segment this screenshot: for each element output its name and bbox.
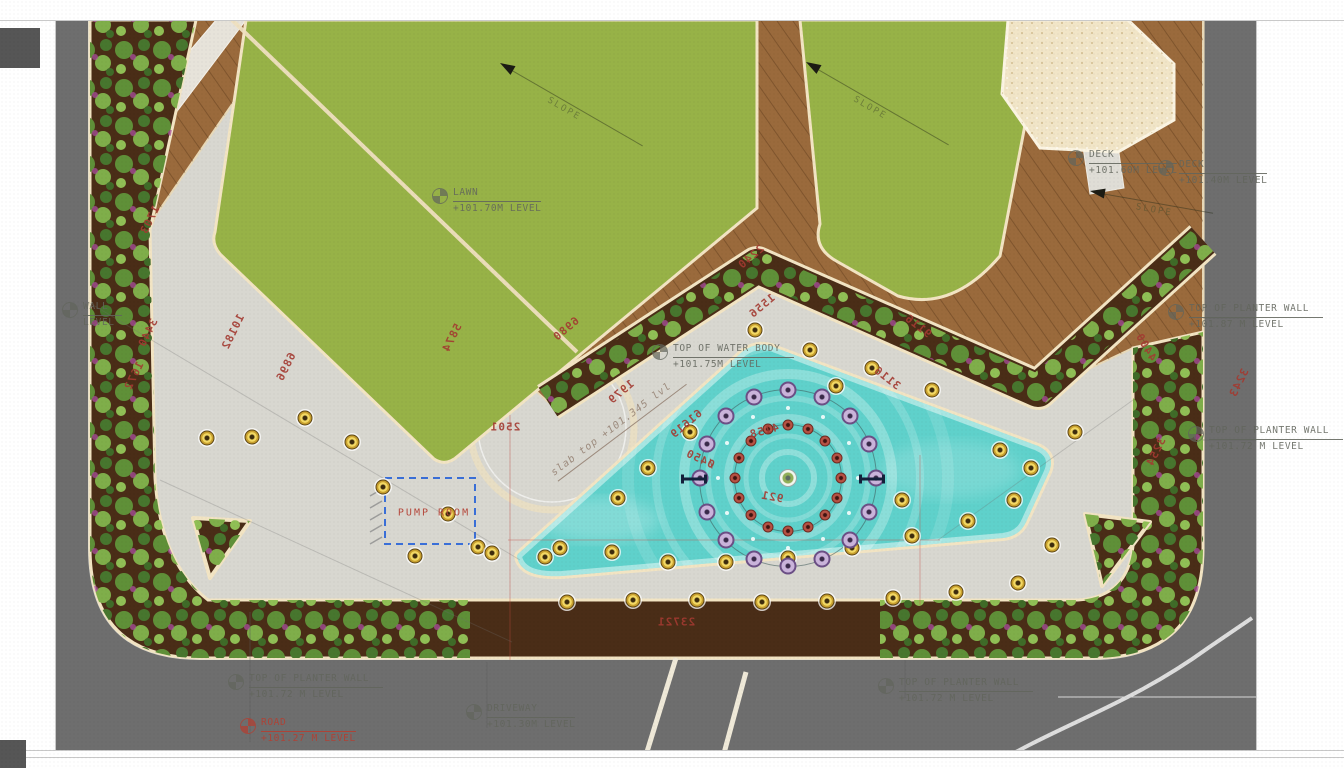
fountain-jet-outer [842,532,859,549]
label-text: TOP OF PLANTER WALL+101.72 M LEVEL [1209,424,1343,454]
label-text: TOP OF WATER BODY+101.75M LEVEL [673,342,794,372]
light-marker [905,529,920,544]
fountain-jet-inner [730,473,741,484]
fountain-jet-inner [803,424,814,435]
slope-arrow: SLOPE [500,58,665,68]
fountain-jet-mini [725,511,729,515]
margin-left [0,20,55,750]
light-marker [1024,461,1039,476]
fountain-jet-inner [820,510,831,521]
fountain-jet-outer [746,389,763,406]
light-marker [626,593,641,608]
section-marker [860,478,884,481]
label-water-body-level: TOP OF WATER BODY+101.75M LEVEL [652,342,794,372]
fountain-jet-mini [847,511,851,515]
light-marker [748,323,763,338]
level-crosshair-icon [878,678,894,694]
label-planter-wall-level-top-left-partial: WALLLEVEL [62,300,122,330]
light-marker [1068,425,1083,440]
fountain-jet-mini [786,406,790,410]
fountain-jet-outer [814,551,831,568]
light-marker [829,379,844,394]
label-text: WALLLEVEL [83,300,122,330]
light-marker [298,411,313,426]
light-marker [719,555,734,570]
light-marker [1007,493,1022,508]
light-marker [925,383,940,398]
site-plan-canvas: PUMP ROOM LAWN+101.70M LEVELTOP OF WATER… [0,0,1344,768]
fountain-jet-inner [746,510,757,521]
slope-arrow: SLOPE [806,57,971,67]
light-marker [1045,538,1060,553]
fountain-jet-outer [699,436,716,453]
fountain-jet-outer [861,504,878,521]
fountain-jet-outer [718,408,735,425]
pump-room-label: PUMP ROOM [398,508,470,519]
level-crosshair-icon [432,188,448,204]
label-text: DRIVEWAY+101.30M LEVEL [487,702,575,732]
fountain-jet-inner [763,522,774,533]
label-text: DECK+101.40M LEVEL [1179,158,1267,188]
fountain-jet-mini [821,537,825,541]
light-marker [886,591,901,606]
level-crosshair-icon [1168,304,1184,320]
fountain-jet-inner [783,420,794,431]
label-planter-wall-level-bottom-left: TOP OF PLANTER WALL+101.72 M LEVEL [228,672,383,702]
label-text: TOP OF PLANTER WALL+101.72 M LEVEL [899,676,1033,706]
fountain-jet-outer [746,551,763,568]
fountain-jet-mini [847,441,851,445]
light-marker [949,585,964,600]
dimension-text: 23721 [657,616,695,629]
label-planter-wall-level-right-upper: TOP OF PLANTER WALL+101.87 M LEVEL [1168,302,1323,332]
light-marker [661,555,676,570]
fountain-jet-inner [832,453,843,464]
dimension-text: 2501 [490,421,521,434]
light-marker [690,593,705,608]
margin-bottom [0,750,1344,768]
light-marker [345,435,360,450]
light-marker [553,541,568,556]
light-marker [485,546,500,561]
light-marker [755,595,770,610]
fountain-jet-outer [780,382,797,399]
margin-top [0,0,1344,20]
fountain-jet-mini [786,546,790,550]
light-marker [538,550,553,565]
light-marker [471,540,486,555]
light-marker [200,431,215,446]
corner-block-top-left [0,28,40,68]
label-text: ROAD+101.27 M LEVEL [261,716,356,746]
light-marker [605,545,620,560]
fountain-jet-inner [803,522,814,533]
light-marker [993,443,1008,458]
corner-block-bottom-left [0,740,26,768]
label-lawn-level: LAWN+101.70M LEVEL [432,186,541,216]
label-driveway-level: DRIVEWAY+101.30M LEVEL [466,702,575,732]
fountain-jet-outer [842,408,859,425]
fountain-jet-outer [814,389,831,406]
level-crosshair-icon [1188,426,1204,442]
margin-right [1256,20,1344,750]
fountain-jet-inner [734,493,745,504]
fountain-jet-outer [780,558,797,575]
label-road-level: ROAD+101.27 M LEVEL [240,716,356,746]
light-marker [803,343,818,358]
fountain-jet-mini [821,415,825,419]
light-marker [641,461,656,476]
label-text: TOP OF PLANTER WALL+101.72 M LEVEL [249,672,383,702]
label-planter-wall-level-bottom-right: TOP OF PLANTER WALL+101.72 M LEVEL [878,676,1033,706]
fountain-jet-outer [861,436,878,453]
light-marker [1011,576,1026,591]
fountain-jet-inner [783,526,794,537]
fountain-jet-inner [836,473,847,484]
fountain-center [779,469,797,487]
fountain-jet-inner [820,436,831,447]
fountain-jet-mini [751,415,755,419]
level-crosshair-icon [240,718,256,734]
light-marker [245,430,260,445]
label-text: TOP OF PLANTER WALL+101.87 M LEVEL [1189,302,1323,332]
fountain-jet-mini [751,537,755,541]
fountain-jet-outer [718,532,735,549]
light-marker [820,594,835,609]
label-text: LAWN+101.70M LEVEL [453,186,541,216]
light-marker [895,493,910,508]
light-marker [408,549,423,564]
level-crosshair-icon [228,674,244,690]
fountain-jet-mini [716,476,720,480]
level-crosshair-icon [652,344,668,360]
level-crosshair-icon [1158,160,1174,176]
level-crosshair-icon [466,704,482,720]
fountain-jet-inner [832,493,843,504]
label-planter-wall-level-right-lower: TOP OF PLANTER WALL+101.72 M LEVEL [1188,424,1343,454]
light-marker [611,491,626,506]
light-marker [376,480,391,495]
level-crosshair-icon [1068,150,1084,166]
light-marker [560,595,575,610]
section-marker [682,478,706,481]
fountain-jet-outer [699,504,716,521]
light-marker [961,514,976,529]
label-deck-level-right: DECK+101.40M LEVEL [1158,158,1267,188]
fountain-jet-inner [734,453,745,464]
fountain-jet-mini [725,441,729,445]
level-crosshair-icon [62,302,78,318]
